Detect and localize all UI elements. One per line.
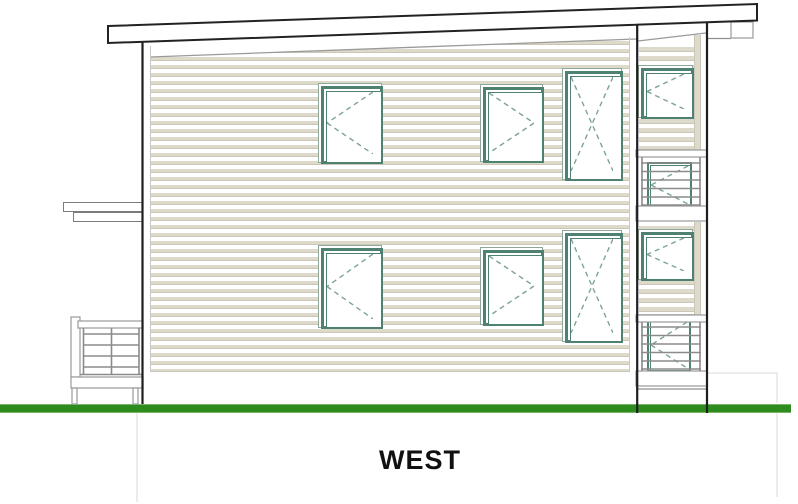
window-frame [641, 68, 694, 119]
tower-deck-band-upper [636, 206, 707, 221]
swing-indicator-dashes [647, 74, 684, 109]
window-lower-tall [562, 230, 622, 342]
porch-sub-post-right [133, 388, 138, 404]
window-frame [483, 250, 544, 326]
window-frame [321, 86, 383, 164]
swing-indicator-dashes [571, 239, 613, 333]
swing-indicator-dashes [327, 92, 373, 154]
window-frame [641, 232, 694, 281]
main-wall-siding [150, 37, 630, 372]
elevation-title: WEST [320, 445, 520, 476]
window-glass [570, 238, 622, 342]
window-tower-upper [638, 65, 693, 118]
window-frame [483, 87, 544, 163]
window-glass [488, 92, 543, 162]
window-lower-middle [480, 247, 543, 325]
window-lower-left [318, 245, 382, 328]
porch-sub-post-left [72, 388, 77, 404]
grade-line [0, 404, 791, 413]
swing-indicator-dashes [651, 166, 688, 204]
fascia-return-box [731, 22, 753, 38]
porch-post [71, 317, 80, 377]
window-frame [321, 248, 383, 329]
swing-indicator-dashes [327, 254, 373, 319]
swing-indicator-dashes [647, 238, 684, 271]
swing-indicator-dashes [571, 77, 613, 171]
window-frame [565, 233, 623, 343]
window-tower-lower [638, 229, 693, 280]
tower-trim-strip-upper [694, 35, 701, 150]
porch-railing [80, 328, 143, 375]
west-elevation-drawing: WEST [0, 0, 798, 504]
entry-canopy-bottom [73, 212, 143, 222]
window-upper-middle [480, 84, 543, 162]
window-glass [646, 73, 693, 118]
tower-top-rail-upper [636, 150, 707, 157]
tower-trim-strip-lower [694, 222, 701, 315]
window-glass [646, 237, 693, 280]
entry-canopy-top [63, 202, 143, 212]
window-glass [650, 321, 690, 371]
window-frame [565, 71, 623, 181]
window-glass [326, 253, 382, 328]
porch-deck-band [71, 377, 143, 388]
window-upper-tall [562, 68, 622, 180]
window-upper-left [318, 83, 382, 163]
window-glass [650, 165, 691, 207]
tower-deck-band-lower [636, 371, 707, 386]
window-balcony-lower [647, 318, 691, 372]
porch-top-rail [78, 321, 143, 328]
window-glass [488, 255, 543, 325]
window-glass [570, 76, 622, 180]
window-glass [326, 91, 382, 163]
swing-indicator-dashes [651, 322, 687, 368]
swing-indicator-dashes [489, 256, 534, 316]
swing-indicator-dashes [489, 93, 534, 153]
window-balcony-upper [647, 162, 692, 208]
